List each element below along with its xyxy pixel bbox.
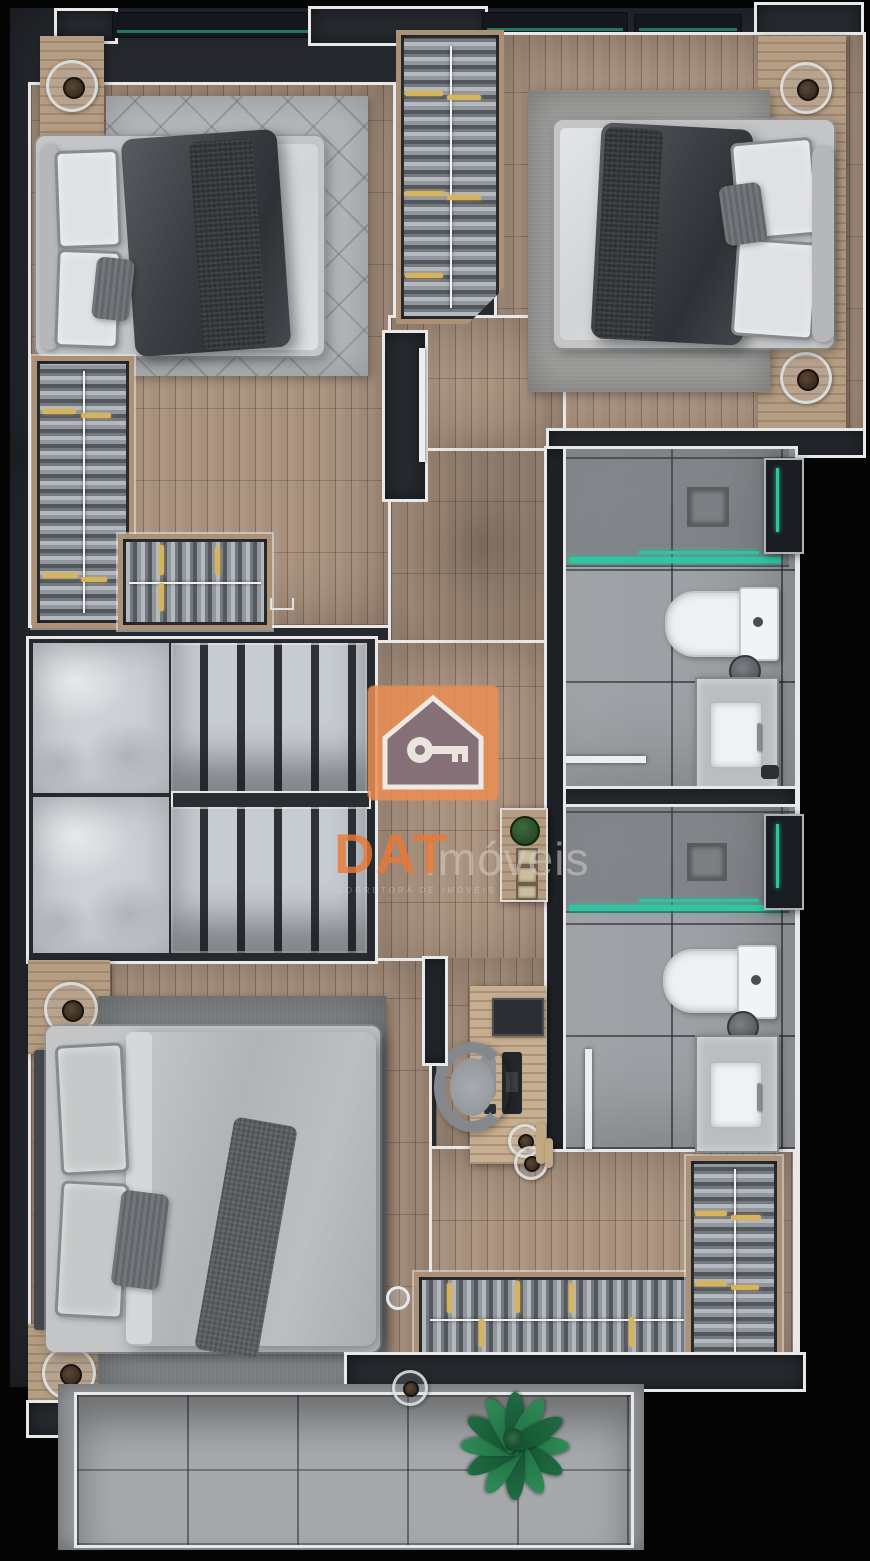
bedroom2-duvet-texture [594, 127, 663, 342]
right-wall-cabinet-upper [764, 458, 804, 554]
flush-button [753, 617, 763, 627]
clothes-accent [447, 1283, 452, 1313]
clothes-accent [81, 413, 111, 418]
vanity-sink [709, 701, 763, 769]
bathroom1-shower-zone [561, 449, 789, 567]
closet-knob [386, 1286, 410, 1310]
flush-button [751, 975, 761, 985]
bedroom2-pillow-bottom [731, 237, 820, 340]
window-glass-accent [639, 28, 737, 31]
bathroom1-door-leaf [562, 756, 646, 763]
closet-rail [450, 46, 452, 307]
desk-photo-board [492, 998, 544, 1036]
bedroom2-accent-pillow [718, 181, 768, 246]
staircase [26, 636, 378, 964]
floor-plan-render: Imóveis DAT CORRETORA DE IMÓVEIS [0, 0, 870, 1561]
clothes-accent [81, 577, 107, 582]
balcony-tray [392, 1370, 428, 1406]
clothes-accent [695, 1211, 727, 1216]
vanity-sink [709, 1061, 763, 1129]
plant-center [503, 1428, 523, 1448]
chair-seat [450, 1058, 494, 1116]
balcony-plant [448, 1368, 582, 1524]
stair-treads-upper [171, 643, 367, 793]
clothes-accent [405, 91, 443, 96]
bathroom-accessory [761, 765, 779, 779]
bedroom1-pillow-top [54, 149, 121, 249]
shower-glass-panel [569, 905, 781, 911]
clothes-accent [731, 1285, 759, 1290]
clothes-accent [447, 195, 481, 200]
clothes-accent [159, 545, 164, 575]
bedroom2-decor-tray-top [780, 62, 832, 114]
faucet [757, 723, 761, 751]
clothes-accent [42, 573, 78, 578]
coffee-cup [797, 369, 819, 391]
clothes-accent [42, 409, 76, 414]
bathroom1 [558, 446, 798, 798]
bedroom3-sheet-fold [126, 1032, 152, 1344]
right-wall-cabinet-lower [764, 814, 804, 910]
bathroom2-door-leaf [585, 1049, 592, 1149]
bathrooms-left-wall [544, 446, 566, 1152]
toilet-tank [739, 587, 779, 661]
door-handle-mark [270, 598, 294, 610]
bedroom2-decor-tray-bottom [780, 352, 832, 404]
clothes-accent [731, 1215, 761, 1220]
toilet-tank [737, 945, 777, 1019]
bathroom2-shower-zone [561, 807, 789, 913]
clothes-accent [405, 273, 443, 278]
shower-glass-panel [639, 899, 759, 902]
cabinet-accent-light [776, 468, 779, 532]
bedroom1-dresser [118, 534, 272, 630]
vanity-counter [695, 1035, 779, 1153]
bedroom3-pillow-top [55, 1042, 130, 1175]
faucet [757, 1083, 761, 1111]
closet-rail [430, 1319, 684, 1321]
bedroom1-decor-tray [46, 60, 98, 112]
watermark-brand: DAT [334, 826, 448, 882]
coffee-cup [63, 77, 85, 99]
shower-drain [687, 843, 727, 881]
stair-landing-lower [33, 797, 169, 953]
shower-glass-panel [569, 557, 781, 563]
walkin-closet-top [396, 30, 504, 324]
watermark-brand-subtitle: CORRETORA DE IMÓVEIS [337, 886, 496, 895]
shower-glass-panel [639, 551, 759, 554]
clothes-accent [159, 583, 164, 611]
clothes-accent [479, 1319, 484, 1347]
clothes-accent [629, 1317, 634, 1347]
decor-stick [545, 1138, 553, 1168]
window-glass-accent [117, 30, 313, 33]
bedroom3-hall-wall [422, 956, 448, 1066]
closet-room-wardrobe-vertical [686, 1156, 782, 1366]
shower-drain [687, 487, 729, 527]
clothes-accent [447, 95, 481, 100]
closet-rail [129, 582, 262, 584]
coffee-cup [60, 1364, 82, 1386]
clothes-accent [405, 191, 445, 196]
bedroom2-head-cushion [812, 146, 834, 342]
house-with-key-icon [368, 686, 498, 800]
clothes-accent [515, 1281, 520, 1313]
bedroom1-accent-pillow [91, 256, 135, 322]
clothes-accent [215, 547, 220, 575]
cabinet-accent-light [776, 824, 779, 888]
bedroom1-door-leaf [419, 348, 425, 462]
clothes-accent [569, 1283, 574, 1313]
window-top-left [112, 12, 318, 38]
decor-frame [516, 884, 538, 900]
clothes-accent [695, 1281, 727, 1286]
watermark-brand-suffix: Imóveis [424, 836, 589, 882]
bathroom2 [558, 804, 798, 1152]
stair-landing-upper [33, 643, 169, 793]
coffee-cup [62, 1000, 84, 1022]
closet-rail [734, 1169, 736, 1353]
window-glass-accent [487, 28, 623, 31]
coffee-cup [797, 79, 819, 101]
coffee-cup [403, 1381, 419, 1397]
